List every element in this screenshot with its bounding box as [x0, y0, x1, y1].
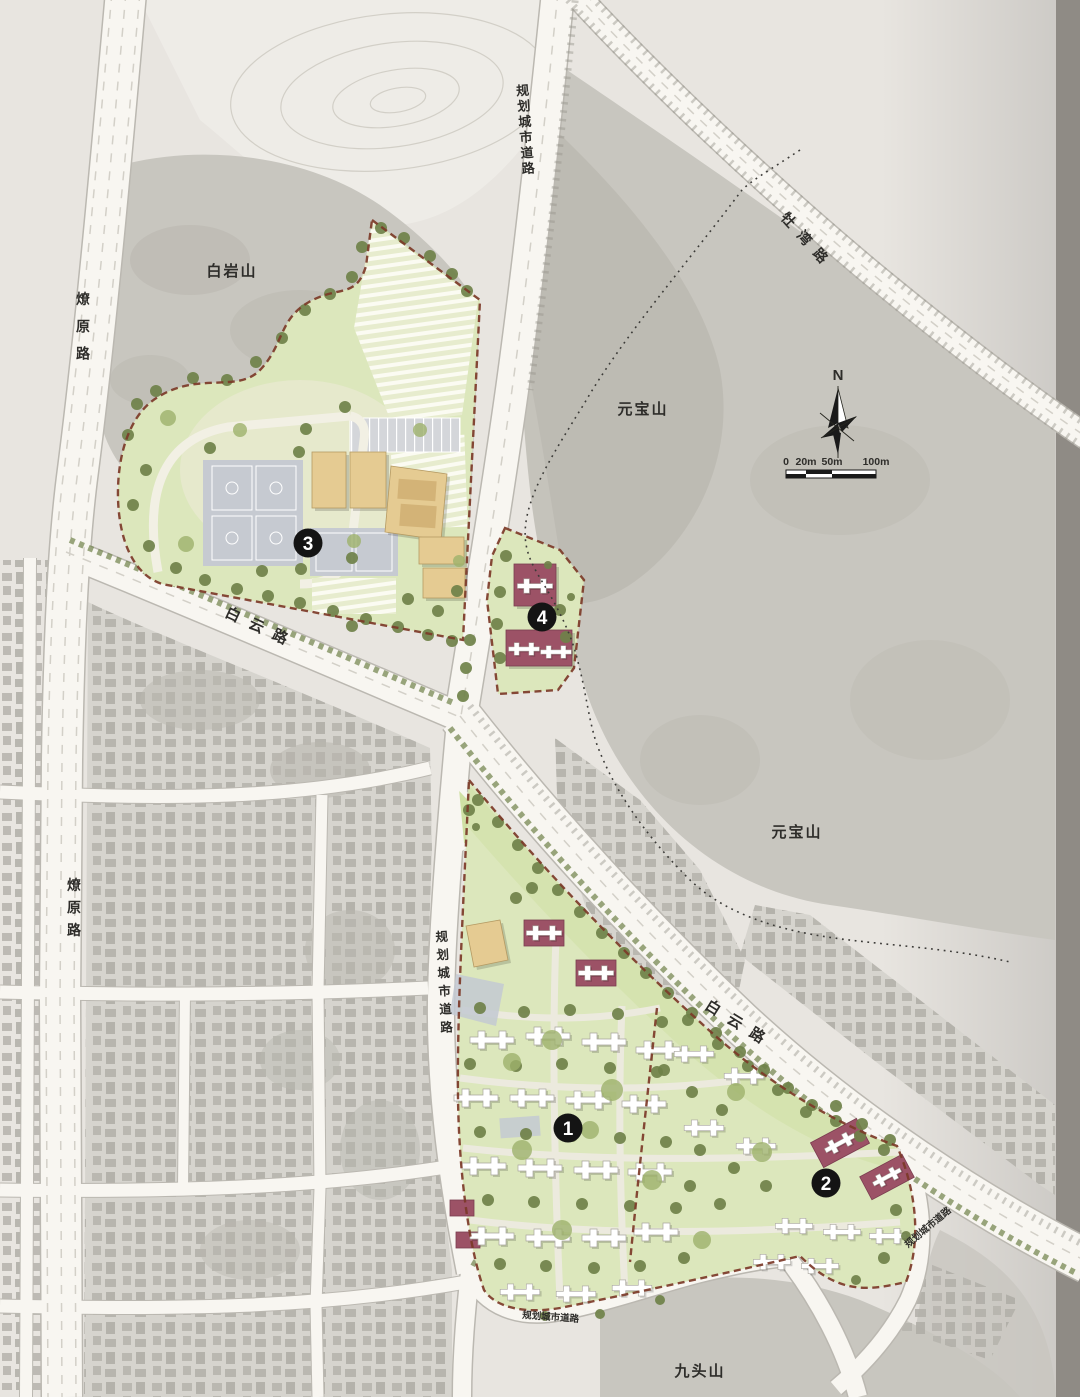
zone-marker-3-number: 3: [303, 534, 314, 555]
zone-marker-4-number: 4: [537, 608, 548, 629]
street-margin-west: [26, 558, 30, 1397]
zone-marker-2-number: 2: [821, 1174, 832, 1195]
zone-marker-2: 2: [812, 1169, 841, 1198]
road-label-liaoyuan-north: 燎原路: [76, 291, 91, 362]
scale-tick-0: 0: [783, 456, 789, 468]
parking-rows: [312, 578, 396, 614]
scale-tick-100: 100m: [863, 456, 890, 468]
road-south-west: [462, 1272, 470, 1397]
mountain-label-yuanbaoshan-north: 元宝山: [617, 400, 668, 418]
scale-tick-50: 50m: [821, 456, 842, 468]
scale-tick-20: 20m: [795, 456, 816, 468]
road-label-liaoyuan-south: 燎原路: [67, 877, 82, 938]
north-label: N: [833, 367, 844, 384]
zone-marker-3: 3: [294, 529, 323, 558]
street-grid-6: [183, 992, 185, 1188]
mountain-label-jiutoushan: 九头山: [673, 1362, 725, 1380]
mountain-label-yuanbaoshan-south: 元宝山: [771, 823, 822, 841]
site-plan-map: 白岩山 元宝山 元宝山 九头山 燎原路 燎原路 规划城市道路 牡湾路 白云路 白…: [0, 0, 1080, 1397]
zone-marker-1-number: 1: [563, 1119, 574, 1140]
zone-marker-4: 4: [528, 603, 557, 632]
zone-marker-1: 1: [554, 1114, 583, 1143]
street-grid-5: [316, 795, 322, 1397]
mountain-label-baiyanshan: 白岩山: [206, 262, 257, 280]
scale-bar: 0 20m 50m 100m: [783, 456, 889, 478]
